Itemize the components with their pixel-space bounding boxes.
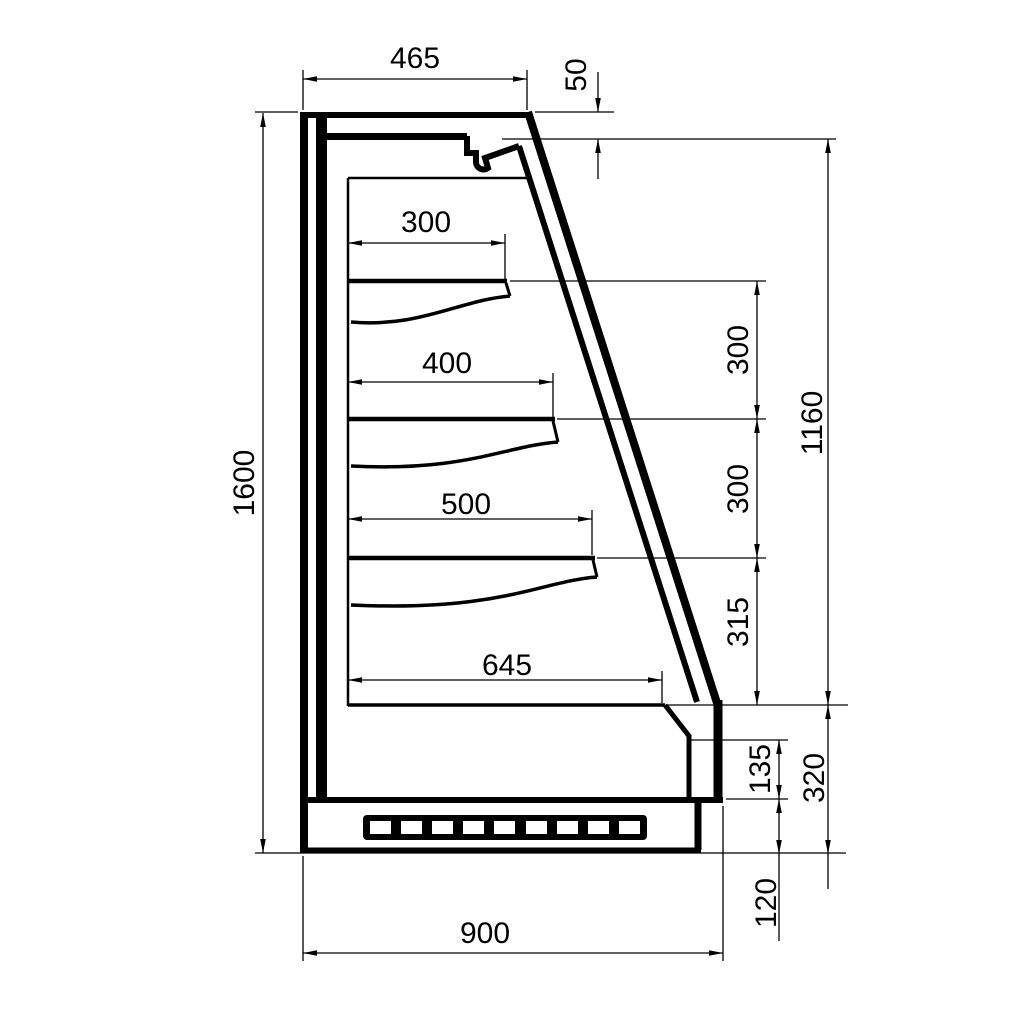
front-glass-inner (519, 146, 697, 702)
vent-slot (557, 821, 578, 834)
vent-slot (463, 821, 484, 834)
shelf-3-bracket-curve (351, 577, 597, 606)
vent-grille (363, 815, 647, 840)
dim-label-top-width: 465 (390, 42, 440, 75)
dim-label-shelf-gap-2: 300 (722, 464, 755, 514)
vent-slot (619, 821, 640, 834)
shelf-2-front-lip (553, 421, 558, 442)
shelf-3-front-lip (593, 560, 597, 577)
dim-label-plinth-height: 120 (750, 878, 783, 928)
back-wall-outer (300, 112, 308, 853)
dim-label-opening-height: 1160 (796, 391, 829, 456)
vent-slot (432, 821, 453, 834)
dim-label-shelf3-depth: 500 (441, 488, 491, 521)
dim-label-total-depth: 900 (460, 917, 510, 950)
front-bumper-profile (665, 705, 689, 798)
vent-slot (526, 821, 547, 834)
dim-label-total-height: 1600 (228, 450, 261, 517)
dim-label-shelf-gap-3: 315 (722, 597, 755, 647)
air-duct-canopy (327, 133, 467, 140)
top-panel (300, 112, 530, 118)
back-wall-inner (316, 118, 327, 798)
vent-slot (370, 821, 391, 834)
dim-label-lower-front-height: 320 (798, 753, 831, 803)
front-glass-outer (528, 112, 717, 703)
shelf-2-bracket-curve (351, 442, 558, 467)
vent-slot (401, 821, 422, 834)
dim-label-shelf-gap-1: 300 (722, 325, 755, 375)
technical-drawing: 465 50 300 400 500 645 1600 300 300 315 … (0, 0, 1024, 1024)
vent-slot (494, 821, 515, 834)
dim-label-shelf1-depth: 300 (401, 206, 451, 239)
shelf-1-front-lip (506, 283, 510, 296)
shelf-1-bracket-curve (351, 296, 510, 323)
vent-slot (588, 821, 609, 834)
dim-label-bottom-shelf-depth: 645 (482, 649, 532, 682)
dim-label-top-drop: 50 (560, 58, 593, 91)
cabinet-section (300, 112, 723, 853)
dim-label-shelf2-depth: 400 (422, 347, 472, 380)
drawing-canvas: 465 50 300 400 500 645 1600 300 300 315 … (0, 0, 1024, 1024)
dim-label-bumper-height: 135 (744, 744, 777, 794)
air-outlet-nozzle (467, 136, 519, 170)
